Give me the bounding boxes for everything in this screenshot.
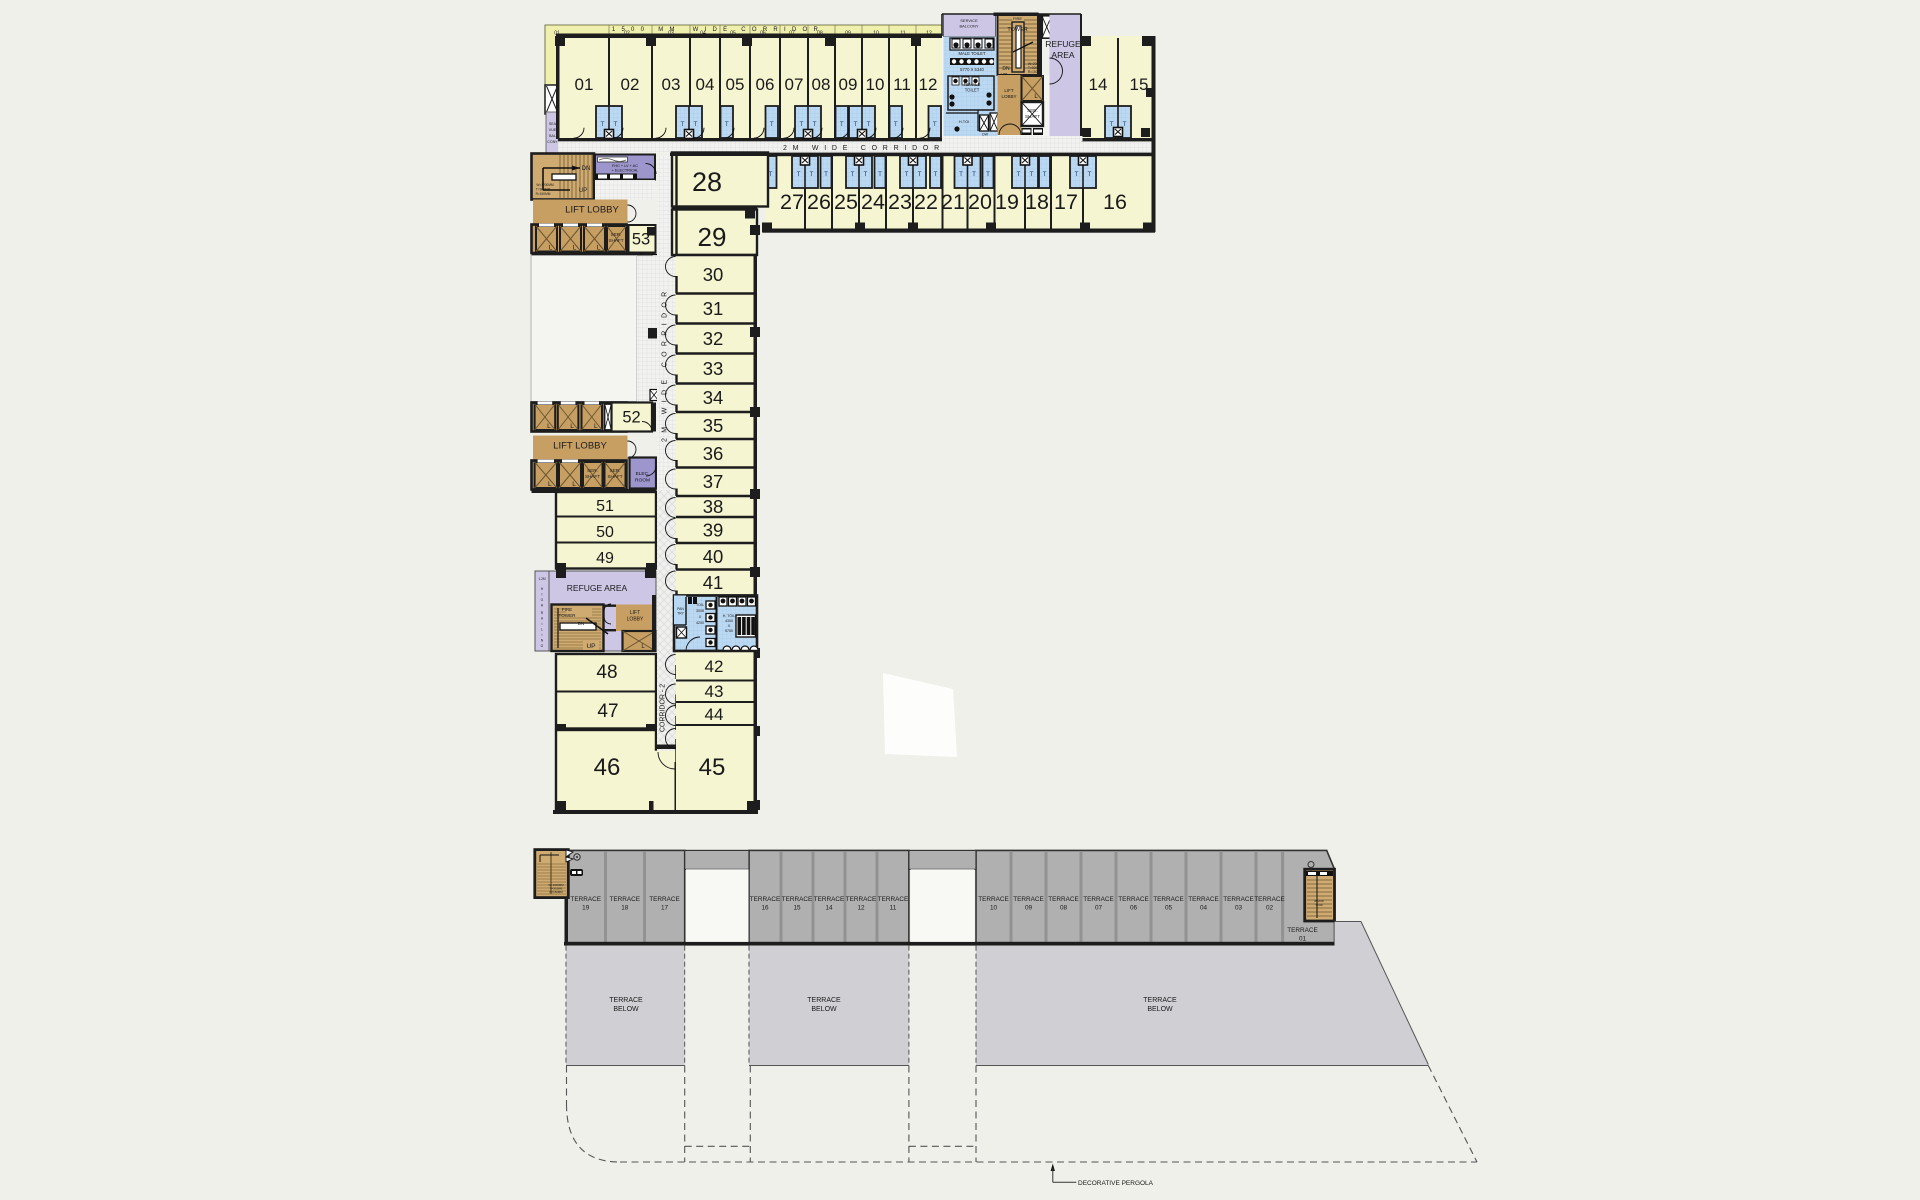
- svg-text:TERRACE: TERRACE: [609, 997, 643, 1004]
- svg-text:04: 04: [696, 75, 715, 94]
- svg-text:52: 52: [622, 409, 640, 427]
- svg-text:31: 31: [703, 298, 724, 319]
- svg-text:L: L: [570, 423, 574, 430]
- svg-text:TOIL: TOIL: [696, 603, 704, 607]
- svg-text:TERRACE: TERRACE: [1083, 896, 1114, 903]
- svg-text:T: T: [1088, 171, 1092, 178]
- svg-text:2 M W I D E C O R R I D O: 2 M W I D E C O R R I D O R: [662, 290, 669, 442]
- svg-text:I: I: [542, 633, 543, 637]
- svg-text:02: 02: [621, 75, 640, 94]
- svg-text:T: T: [934, 171, 938, 178]
- svg-text:TERRACE: TERRACE: [1013, 896, 1044, 903]
- svg-text:44: 44: [705, 705, 724, 724]
- svg-text:TERRACE: TERRACE: [1188, 896, 1219, 903]
- svg-text:LIFT: LIFT: [1004, 88, 1014, 93]
- svg-text:SHAFT: SHAFT: [1025, 114, 1040, 119]
- svg-text:45: 45: [699, 754, 726, 781]
- svg-text:TERRACE: TERRACE: [1153, 896, 1184, 903]
- svg-text:07: 07: [1095, 905, 1103, 912]
- svg-text:36: 36: [703, 443, 724, 464]
- svg-text:BELOW: BELOW: [1147, 1006, 1173, 1013]
- svg-text:BELOW: BELOW: [811, 1006, 837, 1013]
- svg-text:TOWER: TOWER: [1007, 27, 1027, 33]
- svg-text:24: 24: [861, 190, 885, 214]
- svg-text:14: 14: [825, 905, 833, 912]
- svg-text:02: 02: [1266, 905, 1274, 912]
- svg-text:TERRACE: TERRACE: [1048, 896, 1079, 903]
- svg-text:SER.: SER.: [611, 232, 622, 237]
- svg-text:TRY: TRY: [677, 612, 684, 616]
- svg-text:T: T: [1030, 171, 1034, 178]
- svg-text:T: T: [972, 171, 976, 178]
- svg-text:DW: DW: [982, 133, 989, 137]
- svg-text:SEA: SEA: [549, 122, 557, 126]
- svg-text:T: T: [933, 121, 937, 128]
- svg-text:TERRACE: TERRACE: [878, 896, 909, 903]
- svg-text:5770 X 5340: 5770 X 5340: [960, 67, 984, 72]
- svg-text:SER.: SER.: [1027, 108, 1038, 113]
- svg-text:T: T: [810, 171, 814, 178]
- svg-text:L: L: [573, 245, 577, 252]
- svg-text:41: 41: [703, 572, 724, 593]
- svg-text:LOBBY: LOBBY: [1001, 94, 1016, 99]
- svg-text:19: 19: [582, 905, 590, 912]
- svg-text:H. TOIL: H. TOIL: [723, 614, 735, 618]
- svg-text:07: 07: [785, 75, 804, 94]
- svg-text:T: T: [797, 171, 801, 178]
- svg-text:SHAFT: SHAFT: [585, 474, 600, 479]
- svg-text:T: T: [959, 171, 963, 178]
- svg-text:23: 23: [888, 190, 912, 214]
- svg-text:2 M W I D E C O R R I D O: 2 M W I D E C O R R I D O R: [783, 145, 941, 152]
- svg-text:L: L: [547, 423, 551, 430]
- svg-text:T: T: [878, 171, 882, 178]
- svg-text:T: T: [1043, 171, 1047, 178]
- svg-text:43: 43: [705, 682, 724, 701]
- svg-text:L: L: [572, 481, 576, 488]
- svg-text:T: T: [813, 121, 817, 128]
- svg-text:5750: 5750: [725, 629, 733, 633]
- svg-text:T: T: [769, 171, 773, 178]
- svg-text:12: 12: [919, 75, 938, 94]
- svg-text:L: L: [549, 245, 553, 252]
- svg-text:LOBBY: LOBBY: [627, 617, 644, 623]
- svg-text:PAN: PAN: [677, 607, 684, 611]
- svg-text:51: 51: [596, 498, 614, 515]
- svg-text:35: 35: [703, 415, 724, 436]
- svg-text:06: 06: [1130, 905, 1138, 912]
- svg-text:15: 15: [1130, 75, 1149, 94]
- svg-text:FIRE: FIRE: [562, 607, 572, 612]
- svg-text:BAL: BAL: [549, 134, 556, 138]
- svg-text:11: 11: [893, 75, 911, 94]
- svg-text:T: T: [864, 171, 868, 178]
- svg-text:T: T: [1075, 171, 1079, 178]
- svg-text:34: 34: [703, 387, 724, 408]
- svg-text:SERVICE: SERVICE: [960, 18, 978, 23]
- svg-text:VUE: VUE: [549, 128, 557, 132]
- svg-text:03: 03: [1235, 905, 1243, 912]
- svg-text:30: 30: [703, 264, 724, 285]
- svg-text:12: 12: [857, 905, 865, 912]
- svg-text:TOILET: TOILET: [965, 88, 980, 93]
- svg-text:L: L: [548, 481, 552, 488]
- svg-text:UP: UP: [579, 188, 587, 194]
- svg-text:L: L: [594, 423, 598, 430]
- svg-text:T: T: [840, 121, 844, 128]
- svg-text:21: 21: [941, 190, 965, 214]
- svg-text:47: 47: [597, 701, 618, 722]
- svg-text:I: I: [542, 622, 543, 626]
- svg-text:BELOW: BELOW: [613, 1006, 639, 1013]
- svg-text:TERRACE: TERRACE: [814, 896, 845, 903]
- svg-text:TERRACE: TERRACE: [1223, 896, 1254, 903]
- svg-text:T: T: [854, 121, 858, 128]
- svg-text:1.2M: 1.2M: [538, 577, 545, 581]
- svg-text:TERRACE: TERRACE: [750, 896, 781, 903]
- svg-text:08: 08: [812, 75, 831, 94]
- svg-text:L: L: [541, 628, 543, 632]
- svg-text:T: T: [614, 121, 618, 128]
- svg-text:08: 08: [1060, 905, 1068, 912]
- svg-text:TERRACE: TERRACE: [1143, 997, 1177, 1004]
- svg-text:H.TOI: H.TOI: [959, 119, 970, 124]
- svg-text:16: 16: [761, 905, 769, 912]
- svg-text:LIFT: LIFT: [630, 610, 640, 616]
- svg-text:TERRACE: TERRACE: [807, 997, 841, 1004]
- svg-text:DN: DN: [1002, 66, 1010, 72]
- svg-text:I: I: [542, 593, 543, 597]
- svg-text:10: 10: [990, 905, 998, 912]
- svg-text:G: G: [541, 598, 544, 602]
- svg-text:15: 15: [793, 905, 801, 912]
- svg-text:01: 01: [575, 75, 594, 94]
- svg-text:37: 37: [703, 471, 724, 492]
- svg-text:32: 32: [703, 328, 724, 349]
- svg-text:T: T: [1017, 171, 1021, 178]
- svg-text:T: T: [824, 171, 828, 178]
- svg-text:TERRACE: TERRACE: [1118, 896, 1149, 903]
- svg-text:27: 27: [780, 190, 804, 214]
- svg-text:T: T: [986, 171, 990, 178]
- svg-text:17: 17: [1054, 190, 1078, 214]
- svg-text:25: 25: [834, 190, 858, 214]
- svg-text:46: 46: [594, 754, 621, 781]
- svg-text:T: T: [894, 121, 898, 128]
- svg-text:42: 42: [705, 657, 724, 676]
- svg-text:+ ELECTRICAL: + ELECTRICAL: [612, 169, 639, 173]
- svg-text:T: T: [905, 171, 909, 178]
- svg-text:TERRACE: TERRACE: [570, 896, 601, 903]
- svg-text:48: 48: [596, 662, 617, 683]
- svg-text:L: L: [597, 245, 601, 252]
- svg-text:LIFT LOBBY: LIFT LOBBY: [553, 441, 607, 452]
- svg-text:T: T: [867, 121, 871, 128]
- svg-text:06: 06: [756, 75, 775, 94]
- svg-text:SHAFT: SHAFT: [608, 238, 623, 243]
- svg-text:T: T: [601, 121, 605, 128]
- svg-text:FHC + LV + AC: FHC + LV + AC: [612, 164, 638, 168]
- svg-text:T: T: [800, 121, 804, 128]
- svg-text:ROOM: ROOM: [635, 478, 650, 484]
- svg-text:DN: DN: [582, 166, 591, 172]
- svg-text:T: T: [918, 171, 922, 178]
- svg-text:26: 26: [807, 190, 831, 214]
- svg-text:22: 22: [914, 190, 938, 214]
- svg-text:T: T: [725, 121, 729, 128]
- svg-text:TERRACE: TERRACE: [649, 896, 680, 903]
- svg-text:4300: 4300: [725, 619, 733, 623]
- svg-text:W=1200MM: W=1200MM: [536, 183, 554, 187]
- svg-text:3008: 3008: [696, 609, 704, 613]
- svg-text:TERRACE: TERRACE: [978, 896, 1009, 903]
- svg-text:04: 04: [1200, 905, 1208, 912]
- svg-text:17: 17: [661, 905, 669, 912]
- svg-text:FEMALE: FEMALE: [964, 82, 981, 87]
- svg-text:10: 10: [866, 75, 885, 94]
- svg-text:TERRACE: TERRACE: [846, 896, 877, 903]
- svg-text:49: 49: [596, 550, 614, 567]
- svg-text:T=300MM: T=300MM: [536, 188, 551, 192]
- svg-text:REFUGE AREA: REFUGE AREA: [567, 583, 628, 593]
- svg-text:REFUGE: REFUGE: [1045, 39, 1081, 49]
- svg-text:14: 14: [1089, 75, 1108, 94]
- svg-text:SHAFT: SHAFT: [607, 474, 622, 479]
- svg-text:16: 16: [1103, 190, 1127, 214]
- svg-text:33: 33: [703, 358, 724, 379]
- svg-text:G: G: [541, 644, 544, 648]
- svg-text:29: 29: [698, 222, 727, 252]
- svg-text:TERRACE: TERRACE: [782, 896, 813, 903]
- svg-text:T: T: [770, 121, 774, 128]
- svg-text:09: 09: [839, 75, 858, 94]
- svg-text:FIRE: FIRE: [1013, 16, 1022, 21]
- svg-text:TOWER: TOWER: [558, 613, 576, 618]
- svg-text:DN: DN: [578, 621, 585, 626]
- svg-text:T: T: [681, 121, 685, 128]
- svg-text:TERRACE: TERRACE: [610, 896, 641, 903]
- svg-text:03: 03: [662, 75, 681, 94]
- svg-text:T=300: T=300: [1315, 903, 1323, 907]
- svg-text:01: 01: [1299, 936, 1307, 943]
- svg-text:20: 20: [968, 190, 992, 214]
- svg-text:R=150MM: R=150MM: [536, 192, 551, 196]
- svg-text:39: 39: [703, 520, 724, 541]
- svg-text:UP: UP: [586, 643, 595, 650]
- svg-text:18: 18: [1025, 190, 1049, 214]
- svg-text:MALE TOILET: MALE TOILET: [958, 51, 986, 56]
- svg-text:09: 09: [1025, 905, 1033, 912]
- svg-text:BALCONY: BALCONY: [959, 24, 978, 29]
- svg-text:38: 38: [703, 496, 724, 517]
- svg-text:SER.: SER.: [610, 468, 621, 473]
- svg-text:T: T: [851, 171, 855, 178]
- svg-text:DECORATIVE PERGOLA: DECORATIVE PERGOLA: [1078, 1180, 1154, 1187]
- svg-text:11: 11: [890, 905, 897, 912]
- svg-text:05: 05: [1165, 905, 1173, 912]
- svg-text:28: 28: [692, 167, 722, 197]
- svg-text:T: T: [694, 121, 698, 128]
- svg-text:LIFT LOBBY: LIFT LOBBY: [565, 205, 619, 216]
- svg-text:TERRACE: TERRACE: [1254, 896, 1285, 903]
- svg-text:AREA: AREA: [1051, 50, 1074, 60]
- svg-text:TERRACE: TERRACE: [1287, 927, 1318, 934]
- svg-text:18: 18: [621, 905, 629, 912]
- svg-text:40: 40: [703, 546, 724, 567]
- svg-text:SER.: SER.: [587, 468, 598, 473]
- svg-text:05: 05: [726, 75, 745, 94]
- svg-text:50: 50: [596, 524, 614, 541]
- svg-text:W=2000: W=2000: [1314, 899, 1324, 903]
- svg-text:CONY: CONY: [547, 140, 558, 144]
- svg-text:19: 19: [995, 190, 1019, 214]
- svg-text:R=150MM: R=150MM: [550, 890, 564, 894]
- svg-text:4200: 4200: [696, 621, 704, 625]
